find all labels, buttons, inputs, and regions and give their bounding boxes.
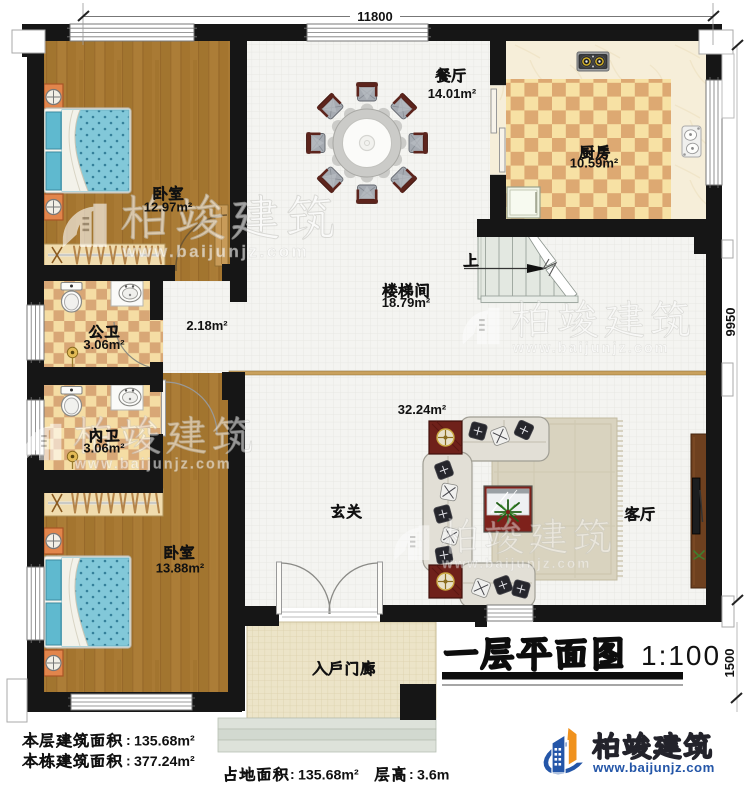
svg-text:12.97m²: 12.97m² — [144, 200, 193, 215]
svg-text:3.06m²: 3.06m² — [83, 441, 125, 456]
svg-text:377.24m²: 377.24m² — [134, 754, 195, 770]
svg-text::: : — [409, 766, 414, 782]
svg-text:11800: 11800 — [357, 9, 392, 24]
svg-text:13.88m²: 13.88m² — [156, 561, 205, 576]
svg-text::: : — [126, 732, 131, 748]
svg-text:www.baijunjz.com: www.baijunjz.com — [592, 760, 715, 775]
svg-text:2.18m²: 2.18m² — [186, 318, 228, 333]
svg-text:www.baijunjz.com: www.baijunjz.com — [74, 457, 232, 473]
svg-text:www.baijunjz.com: www.baijunjz.com — [122, 242, 310, 261]
svg-text:www.baijunjz.com: www.baijunjz.com — [441, 556, 591, 571]
svg-text:1500: 1500 — [722, 649, 737, 678]
svg-text:14.01m²: 14.01m² — [428, 86, 477, 101]
svg-text::: : — [126, 753, 131, 769]
svg-text:135.68m²: 135.68m² — [134, 734, 195, 750]
svg-text:www.baijunjz.com: www.baijunjz.com — [512, 341, 670, 357]
svg-text:18.79m²: 18.79m² — [382, 295, 431, 310]
svg-text::: : — [290, 766, 295, 782]
svg-text:3.6m: 3.6m — [417, 768, 449, 784]
svg-text:10.59m²: 10.59m² — [570, 156, 619, 171]
svg-text:32.24m²: 32.24m² — [398, 402, 447, 417]
svg-text:3.06m²: 3.06m² — [83, 337, 125, 352]
svg-text:9950: 9950 — [723, 308, 738, 337]
svg-text:1:100: 1:100 — [641, 640, 721, 671]
svg-text:135.68m²: 135.68m² — [298, 768, 359, 784]
